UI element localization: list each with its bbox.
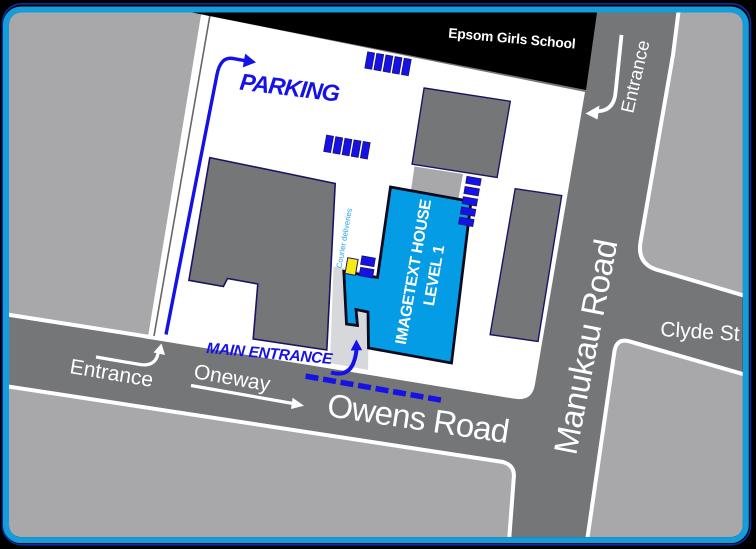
svg-text:Clyde St: Clyde St [660,318,741,346]
